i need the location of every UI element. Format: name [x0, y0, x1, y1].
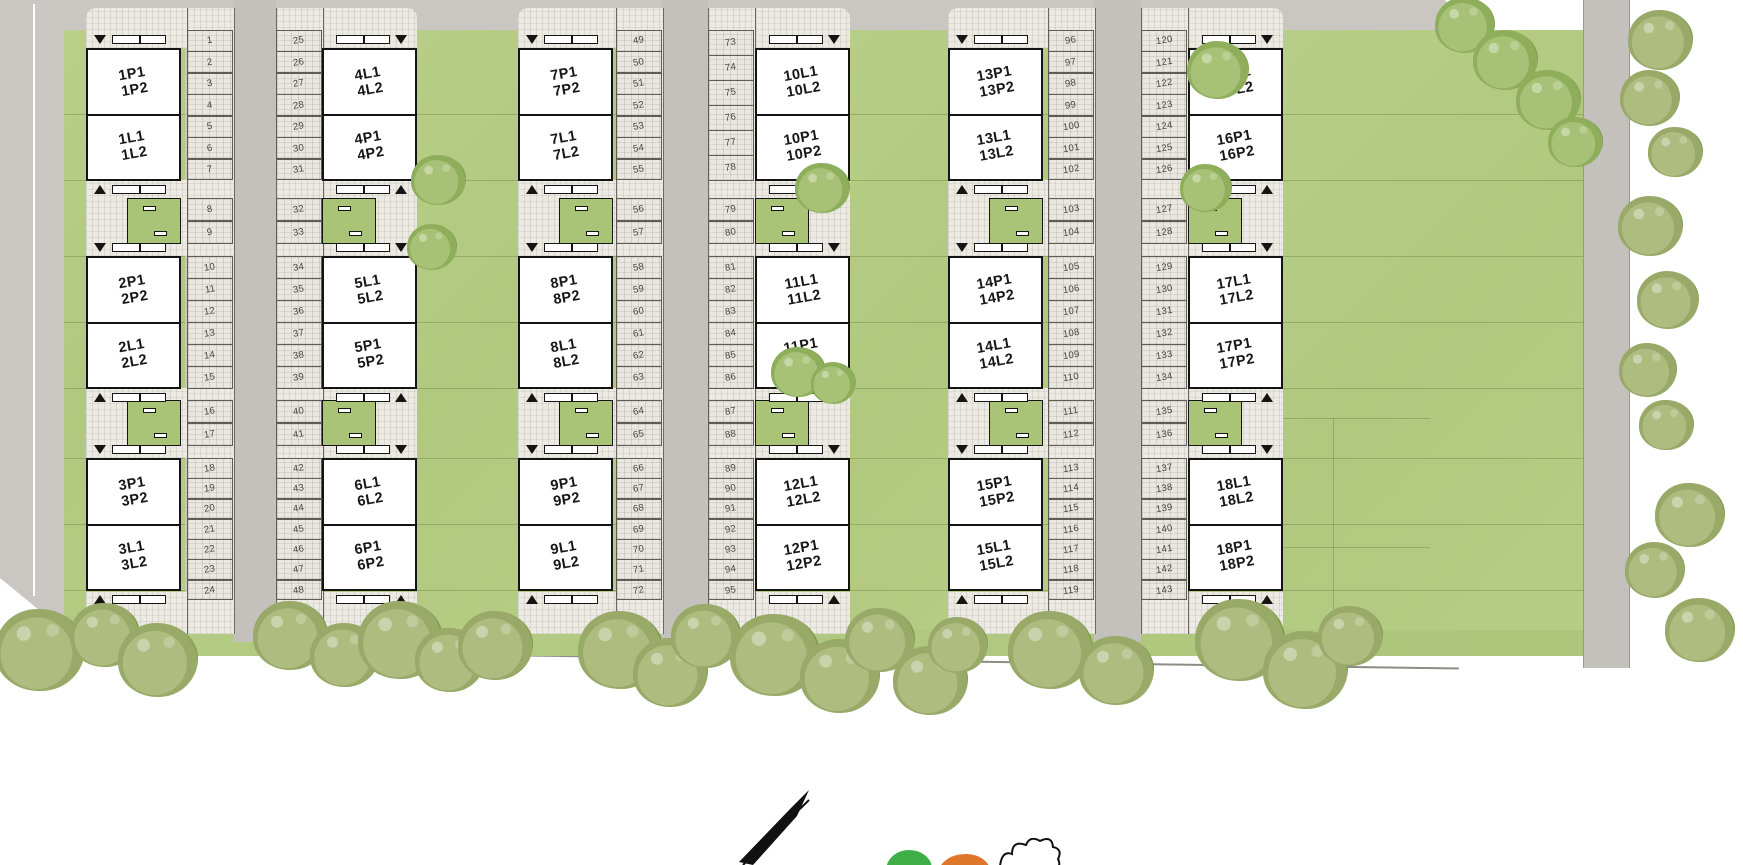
parking-slot-number: 133 — [1155, 349, 1173, 362]
parking-slot-74[interactable]: 74 — [708, 55, 754, 81]
building-pair-1-1: 1P1 1P21L1 1L2 — [86, 48, 181, 181]
parking-slot-number: 12 — [204, 305, 217, 318]
garage-door-icon — [338, 408, 351, 413]
tree-icon — [411, 155, 466, 206]
entrance-arrow-icon — [956, 35, 968, 44]
parking-slot-24[interactable]: 24 — [187, 580, 233, 601]
garage-courtyard — [127, 198, 181, 244]
parking-strip: 9697989910010110210310410510610710810911… — [1048, 8, 1096, 634]
unit-15L1-15L2[interactable]: 15L1 15L2 — [950, 524, 1041, 590]
unit-17L1-17L2[interactable]: 17L1 17L2 — [1190, 258, 1281, 324]
parking-slot-121[interactable]: 121 — [1141, 51, 1187, 73]
parking-slot-115[interactable]: 115 — [1048, 499, 1094, 520]
parking-slot-number: 141 — [1155, 543, 1173, 556]
parking-slot-23[interactable]: 23 — [187, 559, 233, 580]
parking-slot-81[interactable]: 81 — [708, 256, 754, 279]
parking-slot-number: 123 — [1155, 98, 1173, 111]
garage-door-icon — [575, 408, 588, 413]
parking-slot-66[interactable]: 66 — [616, 458, 662, 479]
parking-slot-2[interactable]: 2 — [187, 51, 233, 73]
unit-8P1-8P2[interactable]: 8P1 8P2 — [520, 258, 611, 324]
unit-10L1-10L2[interactable]: 10L1 10L2 — [757, 50, 848, 116]
parking-slot-78[interactable]: 78 — [708, 155, 754, 181]
parking-slot-127[interactable]: 127 — [1141, 198, 1187, 221]
parking-slot-45[interactable]: 45 — [276, 519, 322, 540]
unit-6L1-6L2[interactable]: 6L1 6L2 — [324, 460, 415, 526]
parking-slot-57[interactable]: 57 — [616, 221, 662, 244]
building-pair-4-3: 12L1 12L212P1 12P2 — [755, 458, 850, 591]
parking-slot-52[interactable]: 52 — [616, 94, 662, 116]
garage-door-icon — [1016, 433, 1029, 438]
tree-icon — [1548, 117, 1603, 168]
parking-slot-75[interactable]: 75 — [708, 80, 754, 106]
unit-4P1-4P2[interactable]: 4P1 4P2 — [324, 114, 415, 180]
parking-slot-number: 73 — [725, 36, 738, 49]
parking-slot-141[interactable]: 141 — [1141, 539, 1187, 560]
parking-slot-number: 142 — [1155, 563, 1173, 576]
entrance-arrow-icon — [395, 445, 407, 454]
unit-9L1-9L2[interactable]: 9L1 9L2 — [520, 524, 611, 590]
parking-slot-56[interactable]: 56 — [616, 198, 662, 221]
parking-slot-number: 55 — [633, 163, 646, 176]
garage-door-icon — [586, 231, 599, 236]
unit-11L1-11L2[interactable]: 11L1 11L2 — [757, 258, 848, 324]
parking-slot-83[interactable]: 83 — [708, 300, 754, 323]
parking-slot-138[interactable]: 138 — [1141, 478, 1187, 499]
entrance-arrow-icon — [1261, 445, 1273, 454]
unit-12P1-12P2[interactable]: 12P1 12P2 — [757, 524, 848, 590]
parking-slot-number: 138 — [1155, 482, 1173, 495]
parking-slot-125[interactable]: 125 — [1141, 137, 1187, 159]
parking-slot-39[interactable]: 39 — [276, 366, 322, 389]
parking-slot-number: 39 — [293, 371, 306, 384]
parking-slot-53[interactable]: 53 — [616, 116, 662, 138]
parking-slot-80[interactable]: 80 — [708, 221, 754, 244]
parking-slot-112[interactable]: 112 — [1048, 423, 1094, 446]
building-pair-3-2: 8P1 8P28L1 8L2 — [518, 256, 613, 389]
parking-slot-99[interactable]: 99 — [1048, 94, 1094, 116]
parking-slot-number: 20 — [204, 503, 217, 516]
entrance-arrow-icon — [1261, 595, 1273, 604]
unit-label: 1L1 1L2 — [118, 129, 149, 164]
tree-icon — [1318, 606, 1383, 666]
entrance-canopy — [769, 445, 823, 454]
parking-slot-91[interactable]: 91 — [708, 499, 754, 520]
parking-slot-number: 38 — [293, 349, 306, 362]
unit-12L1-12L2[interactable]: 12L1 12L2 — [757, 460, 848, 526]
parking-slot-number: 124 — [1155, 120, 1173, 133]
parking-slot-43[interactable]: 43 — [276, 478, 322, 499]
parking-slot-47[interactable]: 47 — [276, 559, 322, 580]
parking-slot-55[interactable]: 55 — [616, 159, 662, 181]
unit-13P1-13P2[interactable]: 13P1 13P2 — [950, 50, 1041, 116]
parking-slot-41[interactable]: 41 — [276, 423, 322, 446]
unit-label: 5L1 5L2 — [354, 273, 385, 308]
parking-slot-130[interactable]: 130 — [1141, 278, 1187, 301]
entrance-canopy — [974, 393, 1028, 402]
garage-courtyard — [755, 400, 809, 446]
site-plan: UL. SŁONECZNA 12345678910111213141516171… — [0, 0, 1743, 865]
entrance-arrow-icon — [94, 35, 106, 44]
unit-label: 12L1 12L2 — [783, 474, 823, 511]
parking-slot-number: 120 — [1155, 34, 1173, 47]
unit-7L1-7L2[interactable]: 7L1 7L2 — [520, 114, 611, 180]
parking-slot-29[interactable]: 29 — [276, 116, 322, 138]
parking-slot-number: 25 — [293, 35, 306, 48]
unit-5P1-5P2[interactable]: 5P1 5P2 — [324, 322, 415, 388]
parking-slot-63[interactable]: 63 — [616, 366, 662, 389]
parking-slot-number: 96 — [1065, 35, 1078, 48]
parking-slot-64[interactable]: 64 — [616, 400, 662, 423]
parking-slot-97[interactable]: 97 — [1048, 51, 1094, 73]
road — [233, 0, 276, 642]
parking-slot-34[interactable]: 34 — [276, 256, 322, 279]
parking-slot-32[interactable]: 32 — [276, 198, 322, 221]
unit-label: 15L1 15L2 — [976, 538, 1016, 575]
parking-slot-number: 21 — [204, 523, 217, 536]
unit-14L1-14L2[interactable]: 14L1 14L2 — [950, 322, 1041, 388]
garage-door-icon — [349, 231, 362, 236]
unit-label: 6L1 6L2 — [354, 475, 385, 510]
parking-slot-54[interactable]: 54 — [616, 137, 662, 159]
parking-slot-11[interactable]: 11 — [187, 278, 233, 301]
parking-slot-18[interactable]: 18 — [187, 458, 233, 479]
parking-slot-number: 34 — [293, 261, 306, 274]
entrance-arrow-icon — [526, 393, 538, 402]
parking-slot-42[interactable]: 42 — [276, 458, 322, 479]
parking-slot-59[interactable]: 59 — [616, 278, 662, 301]
entrance-canopy — [336, 185, 390, 194]
unit-17P1-17P2[interactable]: 17P1 17P2 — [1190, 322, 1281, 388]
parking-slot-113[interactable]: 113 — [1048, 458, 1094, 479]
entrance-arrow-icon — [956, 393, 968, 402]
north-arrow-icon — [735, 788, 825, 865]
unit-label: 17L1 17L2 — [1216, 272, 1256, 309]
parking-slot-111[interactable]: 111 — [1048, 400, 1094, 423]
parking-slot-122[interactable]: 122 — [1141, 73, 1187, 95]
parking-slot-number: 128 — [1155, 225, 1173, 238]
parking-slot-105[interactable]: 105 — [1048, 256, 1094, 279]
parking-slot-88[interactable]: 88 — [708, 423, 754, 446]
garage-courtyard — [989, 400, 1043, 446]
parking-slot-76[interactable]: 76 — [708, 105, 754, 131]
parking-slot-98[interactable]: 98 — [1048, 73, 1094, 95]
parking-slot-51[interactable]: 51 — [616, 73, 662, 95]
garden-division-line — [1333, 418, 1334, 640]
unit-1L1-1L2[interactable]: 1L1 1L2 — [88, 114, 179, 180]
parking-slot-14[interactable]: 14 — [187, 344, 233, 367]
parking-slot-119[interactable]: 119 — [1048, 580, 1094, 601]
unit-5L1-5L2[interactable]: 5L1 5L2 — [324, 258, 415, 324]
entrance-canopy — [336, 393, 390, 402]
entrance-canopy — [1202, 243, 1256, 252]
parking-slot-49[interactable]: 49 — [616, 30, 662, 52]
parking-slot-109[interactable]: 109 — [1048, 344, 1094, 367]
parking-slot-116[interactable]: 116 — [1048, 519, 1094, 540]
parking-slot-82[interactable]: 82 — [708, 278, 754, 301]
building-pair-2-2: 5L1 5L25P1 5P2 — [322, 256, 417, 389]
parking-slot-84[interactable]: 84 — [708, 322, 754, 345]
unit-label: 14P1 14P2 — [975, 272, 1015, 309]
unit-2L1-2L2[interactable]: 2L1 2L2 — [88, 322, 179, 388]
parking-slot-number: 125 — [1155, 141, 1173, 154]
building-pair-3-3: 9P1 9P29L1 9L2 — [518, 458, 613, 591]
entrance-canopy — [112, 35, 166, 44]
parking-slot-50[interactable]: 50 — [616, 51, 662, 73]
parking-slot-118[interactable]: 118 — [1048, 559, 1094, 580]
garage-door-icon — [1204, 408, 1217, 413]
parking-slot-134[interactable]: 134 — [1141, 366, 1187, 389]
parking-slot-3[interactable]: 3 — [187, 73, 233, 95]
parking-slot-135[interactable]: 135 — [1141, 400, 1187, 423]
parking-slot-123[interactable]: 123 — [1141, 94, 1187, 116]
unit-label: 9P1 9P2 — [550, 475, 582, 510]
parking-slot-131[interactable]: 131 — [1141, 300, 1187, 323]
entrance-arrow-icon — [956, 185, 968, 194]
parking-slot-67[interactable]: 67 — [616, 478, 662, 499]
parking-slot-22[interactable]: 22 — [187, 539, 233, 560]
parking-slot-107[interactable]: 107 — [1048, 300, 1094, 323]
parking-slot-95[interactable]: 95 — [708, 580, 754, 601]
parking-slot-96[interactable]: 96 — [1048, 30, 1094, 52]
parking-slot-68[interactable]: 68 — [616, 499, 662, 520]
parking-slot-number: 119 — [1062, 583, 1080, 596]
parking-slot-number: 45 — [293, 523, 306, 536]
parking-slot-129[interactable]: 129 — [1141, 256, 1187, 279]
parking-slot-106[interactable]: 106 — [1048, 278, 1094, 301]
parking-slot-120[interactable]: 120 — [1141, 30, 1187, 52]
parking-slot-number: 107 — [1062, 305, 1080, 318]
parking-slot-60[interactable]: 60 — [616, 300, 662, 323]
parking-slot-number: 102 — [1062, 163, 1080, 176]
parking-slot-number: 36 — [293, 305, 306, 318]
parking-slot-6[interactable]: 6 — [187, 137, 233, 159]
parking-slot-27[interactable]: 27 — [276, 73, 322, 95]
unit-7P1-7P2[interactable]: 7P1 7P2 — [520, 50, 611, 116]
parking-slot-44[interactable]: 44 — [276, 499, 322, 520]
entrance-arrow-icon — [956, 595, 968, 604]
parking-slot-12[interactable]: 12 — [187, 300, 233, 323]
unit-2P1-2P2[interactable]: 2P1 2P2 — [88, 258, 179, 324]
parking-slot-number: 118 — [1062, 563, 1080, 576]
parking-slot-70[interactable]: 70 — [616, 539, 662, 560]
unit-label: 17P1 17P2 — [1215, 336, 1255, 373]
parking-slot-number: 87 — [725, 405, 738, 418]
parking-slot-102[interactable]: 102 — [1048, 159, 1094, 181]
tree-icon — [1619, 343, 1677, 396]
unit-4L1-4L2[interactable]: 4L1 4L2 — [324, 50, 415, 116]
parking-slot-number: 70 — [633, 543, 646, 556]
parking-slot-101[interactable]: 101 — [1048, 137, 1094, 159]
parking-slot-31[interactable]: 31 — [276, 159, 322, 181]
unit-label: 9L1 9L2 — [550, 539, 581, 574]
entrance-arrow-icon — [828, 35, 840, 44]
parking-slot-128[interactable]: 128 — [1141, 221, 1187, 244]
parking-slot-72[interactable]: 72 — [616, 580, 662, 601]
parking-slot-7[interactable]: 7 — [187, 159, 233, 181]
tree-icon — [407, 224, 457, 270]
unit-18P1-18P2[interactable]: 18P1 18P2 — [1190, 524, 1281, 590]
parking-slot-132[interactable]: 132 — [1141, 322, 1187, 345]
unit-1P1-1P2[interactable]: 1P1 1P2 — [88, 50, 179, 116]
parking-slot-86[interactable]: 86 — [708, 366, 754, 389]
unit-8L1-8L2[interactable]: 8L1 8L2 — [520, 322, 611, 388]
parking-slot-93[interactable]: 93 — [708, 539, 754, 560]
parking-slot-77[interactable]: 77 — [708, 130, 754, 156]
tree-icon — [928, 617, 988, 672]
parking-slot-13[interactable]: 13 — [187, 322, 233, 345]
parking-slot-20[interactable]: 20 — [187, 499, 233, 520]
parking-slot-142[interactable]: 142 — [1141, 559, 1187, 580]
parking-slot-number: 49 — [633, 35, 646, 48]
parking-slot-number: 111 — [1063, 405, 1080, 418]
entrance-canopy — [974, 445, 1028, 454]
parking-slot-46[interactable]: 46 — [276, 539, 322, 560]
parking-slot-61[interactable]: 61 — [616, 322, 662, 345]
unit-13L1-13L2[interactable]: 13L1 13L2 — [950, 114, 1041, 180]
parking-slot-117[interactable]: 117 — [1048, 539, 1094, 560]
parking-slot-87[interactable]: 87 — [708, 400, 754, 423]
garage-door-icon — [1016, 231, 1029, 236]
parking-slot-8[interactable]: 8 — [187, 198, 233, 221]
parking-slot-30[interactable]: 30 — [276, 137, 322, 159]
parking-slot-85[interactable]: 85 — [708, 344, 754, 367]
tree-icon — [1620, 70, 1680, 125]
parking-slot-21[interactable]: 21 — [187, 519, 233, 540]
parking-slot-89[interactable]: 89 — [708, 458, 754, 479]
unit-label: 7P1 7P2 — [550, 65, 582, 100]
parking-slot-36[interactable]: 36 — [276, 300, 322, 323]
garage-courtyard — [322, 198, 376, 244]
parking-slot-136[interactable]: 136 — [1141, 423, 1187, 446]
parking-slot-number: 61 — [633, 327, 646, 340]
parking-slot-1[interactable]: 1 — [187, 30, 233, 52]
parking-slot-4[interactable]: 4 — [187, 94, 233, 116]
parking-slot-94[interactable]: 94 — [708, 559, 754, 580]
tree-icon — [1618, 196, 1683, 256]
parking-slot-140[interactable]: 140 — [1141, 519, 1187, 540]
parking-slot-number: 83 — [725, 305, 738, 318]
parking-slot-37[interactable]: 37 — [276, 322, 322, 345]
parking-slot-35[interactable]: 35 — [276, 278, 322, 301]
parking-slot-17[interactable]: 17 — [187, 423, 233, 446]
unit-15P1-15P2[interactable]: 15P1 15P2 — [950, 460, 1041, 526]
parking-slot-number: 108 — [1062, 327, 1080, 340]
parking-slot-62[interactable]: 62 — [616, 344, 662, 367]
entrance-canopy — [769, 243, 823, 252]
parking-slot-5[interactable]: 5 — [187, 116, 233, 138]
parking-slot-number: 59 — [633, 283, 646, 296]
parking-slot-133[interactable]: 133 — [1141, 344, 1187, 367]
parking-slot-number: 89 — [725, 462, 738, 475]
parking-slot-79[interactable]: 79 — [708, 198, 754, 221]
entrance-canopy — [974, 243, 1028, 252]
parking-slot-number: 6 — [206, 142, 213, 154]
parking-slot-114[interactable]: 114 — [1048, 478, 1094, 499]
parking-slot-number: 2 — [206, 57, 213, 69]
parking-slot-139[interactable]: 139 — [1141, 499, 1187, 520]
parking-slot-92[interactable]: 92 — [708, 519, 754, 540]
parking-slot-19[interactable]: 19 — [187, 478, 233, 499]
unit-3L1-3L2[interactable]: 3L1 3L2 — [88, 524, 179, 590]
parking-slot-73[interactable]: 73 — [708, 30, 754, 56]
parking-slot-number: 78 — [725, 161, 738, 174]
building-pair-4-1: 10L1 10L210P1 10P2 — [755, 48, 850, 181]
parking-slot-104[interactable]: 104 — [1048, 221, 1094, 244]
parking-slot-110[interactable]: 110 — [1048, 366, 1094, 389]
unit-label: 3L1 3L2 — [118, 539, 149, 574]
garage-door-icon — [143, 408, 156, 413]
parking-slot-number: 72 — [633, 584, 646, 597]
unit-9P1-9P2[interactable]: 9P1 9P2 — [520, 460, 611, 526]
unit-18L1-18L2[interactable]: 18L1 18L2 — [1190, 460, 1281, 526]
parking-slot-69[interactable]: 69 — [616, 519, 662, 540]
parking-slot-108[interactable]: 108 — [1048, 322, 1094, 345]
parking-slot-90[interactable]: 90 — [708, 478, 754, 499]
parking-slot-71[interactable]: 71 — [616, 559, 662, 580]
unit-label: 13L1 13L2 — [976, 128, 1016, 165]
parking-slot-58[interactable]: 58 — [616, 256, 662, 279]
parking-slot-number: 104 — [1062, 225, 1080, 238]
entrance-canopy — [544, 243, 598, 252]
parking-slot-15[interactable]: 15 — [187, 366, 233, 389]
parking-slot-number: 99 — [1065, 99, 1078, 112]
parking-slot-26[interactable]: 26 — [276, 51, 322, 73]
unit-14P1-14P2[interactable]: 14P1 14P2 — [950, 258, 1041, 324]
parking-slot-number: 101 — [1062, 141, 1080, 154]
parking-slot-25[interactable]: 25 — [276, 30, 322, 52]
parking-slot-number: 41 — [293, 428, 306, 441]
parking-slot-103[interactable]: 103 — [1048, 198, 1094, 221]
garage-door-icon — [154, 433, 167, 438]
tree-icon — [1625, 542, 1685, 597]
building-pair-1-2: 2P1 2P22L1 2L2 — [86, 256, 181, 389]
parking-slot-38[interactable]: 38 — [276, 344, 322, 367]
parking-slot-16[interactable]: 16 — [187, 400, 233, 423]
parking-slot-48[interactable]: 48 — [276, 580, 322, 601]
entrance-canopy — [112, 185, 166, 194]
tree-icon — [1648, 127, 1703, 178]
parking-slot-65[interactable]: 65 — [616, 423, 662, 446]
garage-courtyard — [559, 400, 613, 446]
parking-slot-126[interactable]: 126 — [1141, 159, 1187, 181]
parking-slot-number: 90 — [725, 482, 738, 495]
parking-slot-number: 98 — [1065, 77, 1078, 90]
parking-slot-number: 43 — [293, 482, 306, 495]
parking-slot-40[interactable]: 40 — [276, 400, 322, 423]
parking-slot-number: 37 — [293, 327, 306, 340]
parking-slot-number: 5 — [206, 121, 213, 133]
parking-slot-33[interactable]: 33 — [276, 221, 322, 244]
parking-slot-number: 9 — [206, 226, 213, 238]
parking-slot-number: 136 — [1155, 427, 1173, 440]
parking-slot-143[interactable]: 143 — [1141, 580, 1187, 601]
entrance-arrow-icon — [395, 185, 407, 194]
legend-tree-green-icon — [886, 850, 932, 865]
parking-slot-number: 94 — [725, 564, 738, 577]
unit-3P1-3P2[interactable]: 3P1 3P2 — [88, 460, 179, 526]
parking-slot-124[interactable]: 124 — [1141, 116, 1187, 138]
unit-label: 4L1 4L2 — [354, 65, 385, 100]
parking-slot-10[interactable]: 10 — [187, 256, 233, 279]
parking-slot-28[interactable]: 28 — [276, 94, 322, 116]
parking-slot-100[interactable]: 100 — [1048, 116, 1094, 138]
parking-slot-number: 62 — [633, 349, 646, 362]
unit-6P1-6P2[interactable]: 6P1 6P2 — [324, 524, 415, 590]
parking-slot-9[interactable]: 9 — [187, 221, 233, 244]
parking-slot-137[interactable]: 137 — [1141, 458, 1187, 479]
parking-slot-number: 114 — [1062, 482, 1080, 495]
